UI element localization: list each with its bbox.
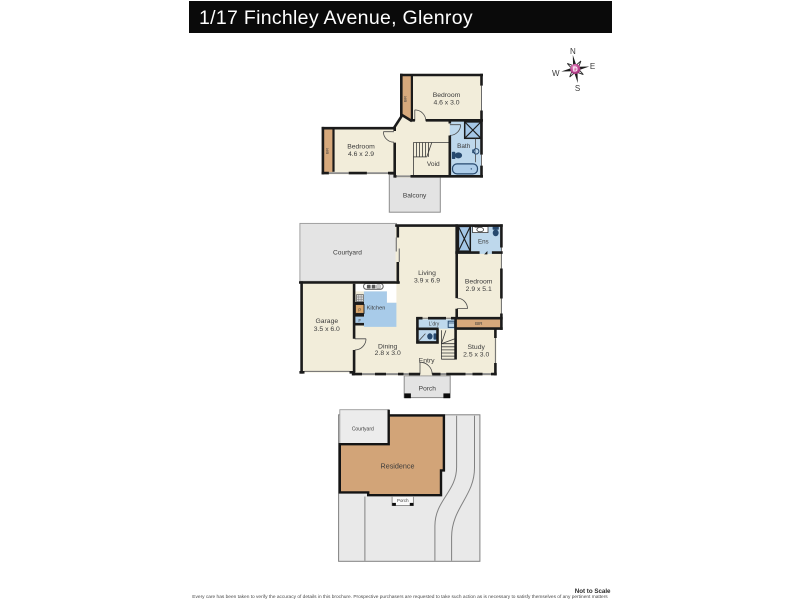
svg-text:S: S [575,84,580,93]
svg-text:Courtyard: Courtyard [352,426,374,432]
svg-text:Bath: Bath [457,143,471,150]
svg-text:Bedroom: Bedroom [347,143,375,150]
svg-text:Porch: Porch [397,498,409,503]
svg-text:L’dry: L’dry [429,321,440,327]
svg-text:Kitchen: Kitchen [367,306,386,312]
svg-text:BIR: BIR [325,148,329,154]
svg-text:Porch: Porch [419,385,437,392]
svg-text:Every care has been taken to v: Every care has been taken to verify the … [192,594,608,600]
svg-text:2.8 x 3.0: 2.8 x 3.0 [375,350,401,357]
svg-text:3.5 x 6.0: 3.5 x 6.0 [314,326,340,333]
svg-text:Void: Void [427,161,440,168]
svg-text:1/17 Finchley Avenue, Glenroy: 1/17 Finchley Avenue, Glenroy [199,7,473,29]
svg-text:F: F [358,318,361,323]
svg-text:E: E [590,62,595,71]
svg-text:Entry: Entry [419,358,435,365]
svg-text:Balcony: Balcony [403,192,427,199]
svg-text:Living: Living [418,270,436,277]
svg-text:Study: Study [468,344,486,351]
svg-text:3.9 x 6.9: 3.9 x 6.9 [414,278,440,285]
svg-text:Bedroom: Bedroom [433,92,461,99]
svg-text:4.6 x 3.0: 4.6 x 3.0 [433,99,459,106]
svg-text:4.6 x 2.9: 4.6 x 2.9 [348,151,374,158]
svg-text:N: N [570,47,576,56]
svg-text:P: P [358,307,361,312]
svg-text:W: W [552,69,560,78]
svg-text:2.9 x 5.1: 2.9 x 5.1 [466,286,492,293]
svg-text:Not to Scale: Not to Scale [575,588,611,595]
svg-text:BIR: BIR [404,96,408,102]
svg-text:D: D [573,66,578,73]
svg-text:BIR: BIR [475,321,482,326]
svg-text:Bedroom: Bedroom [465,278,493,285]
svg-text:Residence: Residence [381,461,415,470]
svg-text:2.5 x 3.0: 2.5 x 3.0 [463,352,489,359]
svg-text:Courtyard: Courtyard [333,250,362,257]
svg-text:Garage: Garage [315,318,338,325]
svg-text:Ens: Ens [478,239,489,246]
